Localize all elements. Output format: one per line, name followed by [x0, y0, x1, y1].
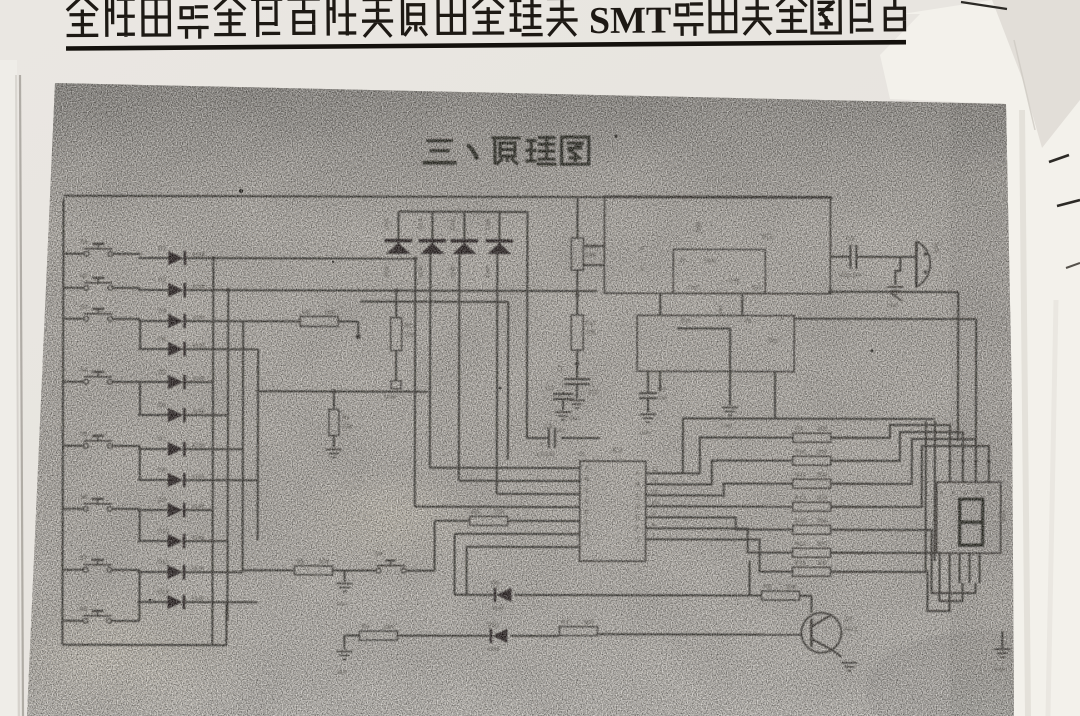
svg-text:SMT: SMT	[589, 0, 672, 42]
